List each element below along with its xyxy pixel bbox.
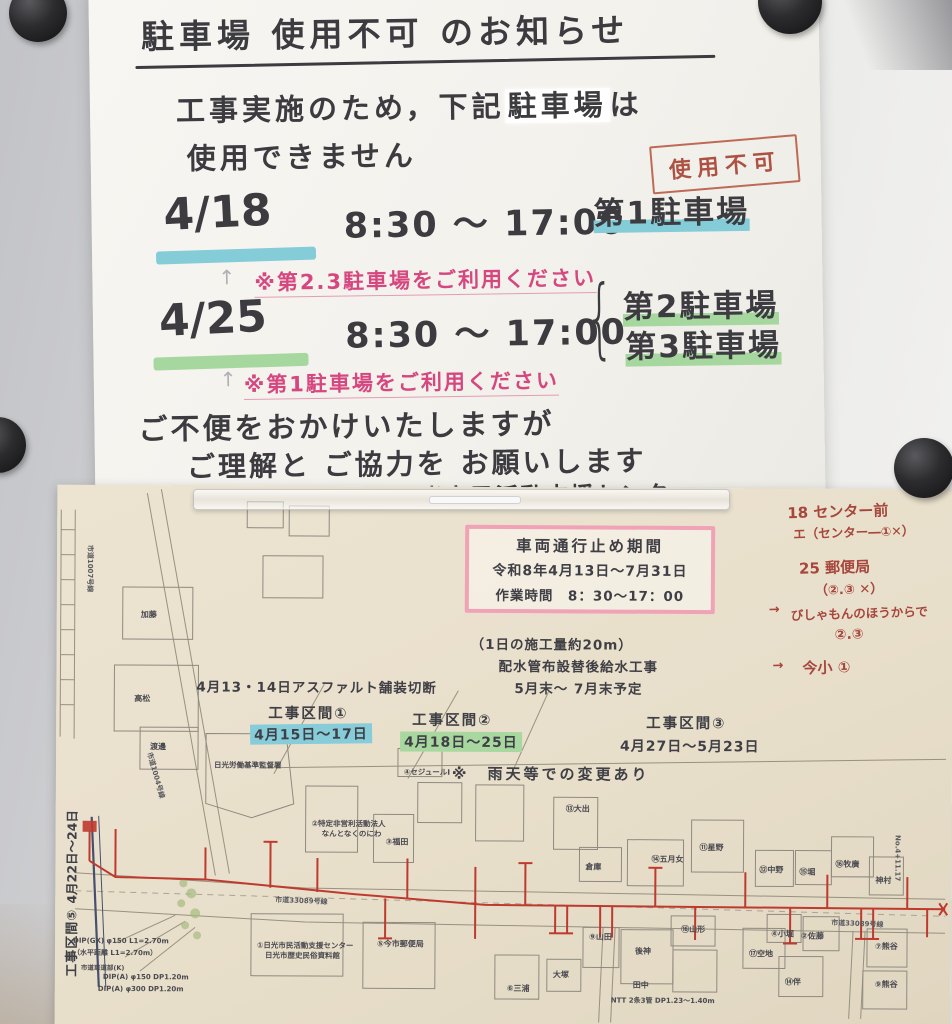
section1-dates: 4月15日〜17日 (250, 723, 372, 744)
bldg-otsuka: 大塚 (553, 969, 569, 980)
memo-line2: エ（センター―①✕） (793, 520, 915, 543)
row2-date: 4/25 (158, 291, 268, 347)
notice-body-line2: 使用できません (186, 133, 417, 178)
bldg-watanabe: 渡邊 (150, 741, 166, 752)
memo-line5: びしゃもんのほうからで (791, 601, 929, 624)
plastic-rail-slot (429, 496, 521, 504)
bldg-ban: ⑭伴 (785, 976, 801, 987)
note-work-type: 配水管布設替後給水工事 (498, 655, 658, 676)
bldg-soutome: ⑭五月女 (651, 854, 683, 865)
body-line1-highlighted-word: 駐車場 (504, 88, 609, 123)
magnet-left (0, 417, 26, 473)
row1-note: ※第2.3駐車場をご利用ください (254, 262, 596, 298)
pipe-ann-3: 市道車道部(K) (81, 962, 125, 972)
bldg-yamada: ⑨山田 (589, 931, 612, 942)
pipe-ann-5: DIP(A) φ300 DP1.20m (98, 985, 184, 993)
pipe-ann-2: （水平距離 L1=2.70m） (73, 948, 157, 958)
section3-dates: 4月27日〜5月23日 (616, 736, 764, 757)
section2-name: 工事区間② (412, 709, 492, 730)
bldg-kamimura: 神村 (875, 875, 891, 886)
plastic-rail (193, 489, 730, 510)
section2-dates: 4月18日〜25日 (400, 731, 522, 752)
bldg-npo-line2: なんとなくのにわ (322, 828, 382, 839)
body-line1-post: は (609, 87, 642, 121)
row1-lot: 第1駐車場 (593, 186, 749, 233)
memo-arrow1: → (769, 602, 780, 617)
magnet-right (894, 438, 952, 498)
pipe-ann-4: DIP(A) φ150 DP1.20m (103, 973, 189, 981)
note-daily-amount: （1日の施工量約20m） (471, 633, 633, 654)
bldg-sato: ②佐藤 (801, 931, 824, 942)
memo-line4: （②.③ ✕） (815, 578, 884, 599)
bldg-yamagata: ⑯山形 (681, 924, 705, 935)
body-line1-pre: 工事実施のため，下記 (176, 89, 505, 128)
row2-lot2: 第3駐車場 (625, 319, 781, 366)
closure-title: 車両通行止め期間 (471, 534, 709, 557)
pencil-arrow-1: ↑ (218, 265, 235, 289)
section5-dates: 4月22日〜24日 (64, 810, 79, 904)
bldg-sejour: ④セジュールⅠ (404, 766, 450, 777)
map-paper: 車両通行止め期間 令和8年4月13日〜7月31日 作業時間 8：30〜17：00… (55, 485, 952, 1024)
section1-name: 工事区間① (268, 702, 348, 723)
bldg-hori: ⑮堀 (799, 867, 815, 878)
bldg-kato: 加藤 (141, 609, 157, 620)
closure-period-box: 車両通行止め期間 令和8年4月13日〜7月31日 作業時間 8：30〜17：00 (465, 525, 715, 614)
bldg-miura: ⑥三浦 (507, 983, 530, 994)
bldg-center-line2: 日光市歴史民俗資料館 (265, 950, 340, 961)
road-label-33089-b: 市道33089号線 (831, 918, 884, 930)
row1-date-highlight (156, 247, 316, 265)
station-label: No.4+11.17 (893, 835, 901, 881)
road-label-33089-a: 市道33089号線 (275, 895, 328, 907)
bldg-takamatsu: 高松 (134, 693, 150, 704)
wall-shadow (822, 0, 952, 70)
bldg-kumagai-1: ⑦熊谷 (875, 941, 898, 952)
bldg-hoshino: ⑪星野 (699, 842, 723, 853)
closure-hours: 作業時間 8：30〜17：00 (471, 584, 709, 605)
bldg-warehouse: 倉庫 (585, 861, 601, 872)
row1-time: 8:30 〜 17:00 (343, 194, 626, 249)
notice-paper: 駐車場 使用不可 のお知らせ 工事実施のため，下記駐車場は 使用できません 使用… (88, 0, 825, 521)
bldg-vacant: ⑰空地 (749, 948, 773, 959)
bldg-fukuda: ③福田 (386, 836, 409, 847)
bldg-gokami: 後神 (635, 946, 651, 957)
bldg-kumagai-2: ⑨熊谷 (875, 979, 898, 990)
bldg-tanaka: 田中 (633, 980, 649, 991)
memo-arrow2: → (772, 658, 783, 673)
bldg-kobori: ④小堀 (771, 928, 794, 939)
bldg-ooide: ⑬大出 (566, 803, 590, 814)
photo-of-notice-board: 駐車場 使用不可 のお知らせ 工事実施のため，下記駐車場は 使用できません 使用… (0, 0, 952, 1024)
pipe-ann-1: DIP(GX) φ150 L1=2.70m (73, 937, 169, 946)
bldg-makihiro: ⑯牧廣 (835, 859, 859, 870)
memo-line6: ②.③ (834, 626, 863, 643)
memo-line7: 今小 ① (802, 656, 851, 678)
notice-body-line1: 工事実施のため，下記駐車場は (176, 81, 643, 130)
row2-brace: { (584, 266, 615, 369)
road-label-1007: 市道1007号線 (85, 545, 95, 593)
section3-name: 工事区間③ (646, 712, 726, 733)
note-asphalt: 4月13・14日アスファルト舗装切断 (196, 675, 437, 696)
row1-date: 4/18 (162, 185, 272, 241)
memo-line3: 25 郵便局 (799, 556, 871, 579)
weather-note: ※ 雨天等での変更あり (452, 763, 650, 785)
closure-period: 令和8年4月13日〜7月31日 (471, 560, 709, 581)
magnet-top-left (9, 0, 67, 42)
pipe-ann-6: NTT 2条3管 DP1.23〜1.40m (611, 996, 715, 1007)
bldg-nakano: ⑫中野 (759, 864, 783, 875)
bldg-labor-office: 日光労働基準監督署 (214, 759, 282, 770)
bldg-post-office: ⑤今市郵便局 (377, 938, 424, 949)
row2-note: ※第1駐車場をご利用ください (244, 365, 559, 400)
note-schedule: 5月末〜 7月末予定 (514, 677, 642, 698)
memo-line1: 18 センター前 (787, 499, 889, 523)
notice-title: 駐車場 使用不可 のお知らせ (141, 4, 630, 59)
pencil-arrow-2: ↑ (220, 367, 237, 391)
